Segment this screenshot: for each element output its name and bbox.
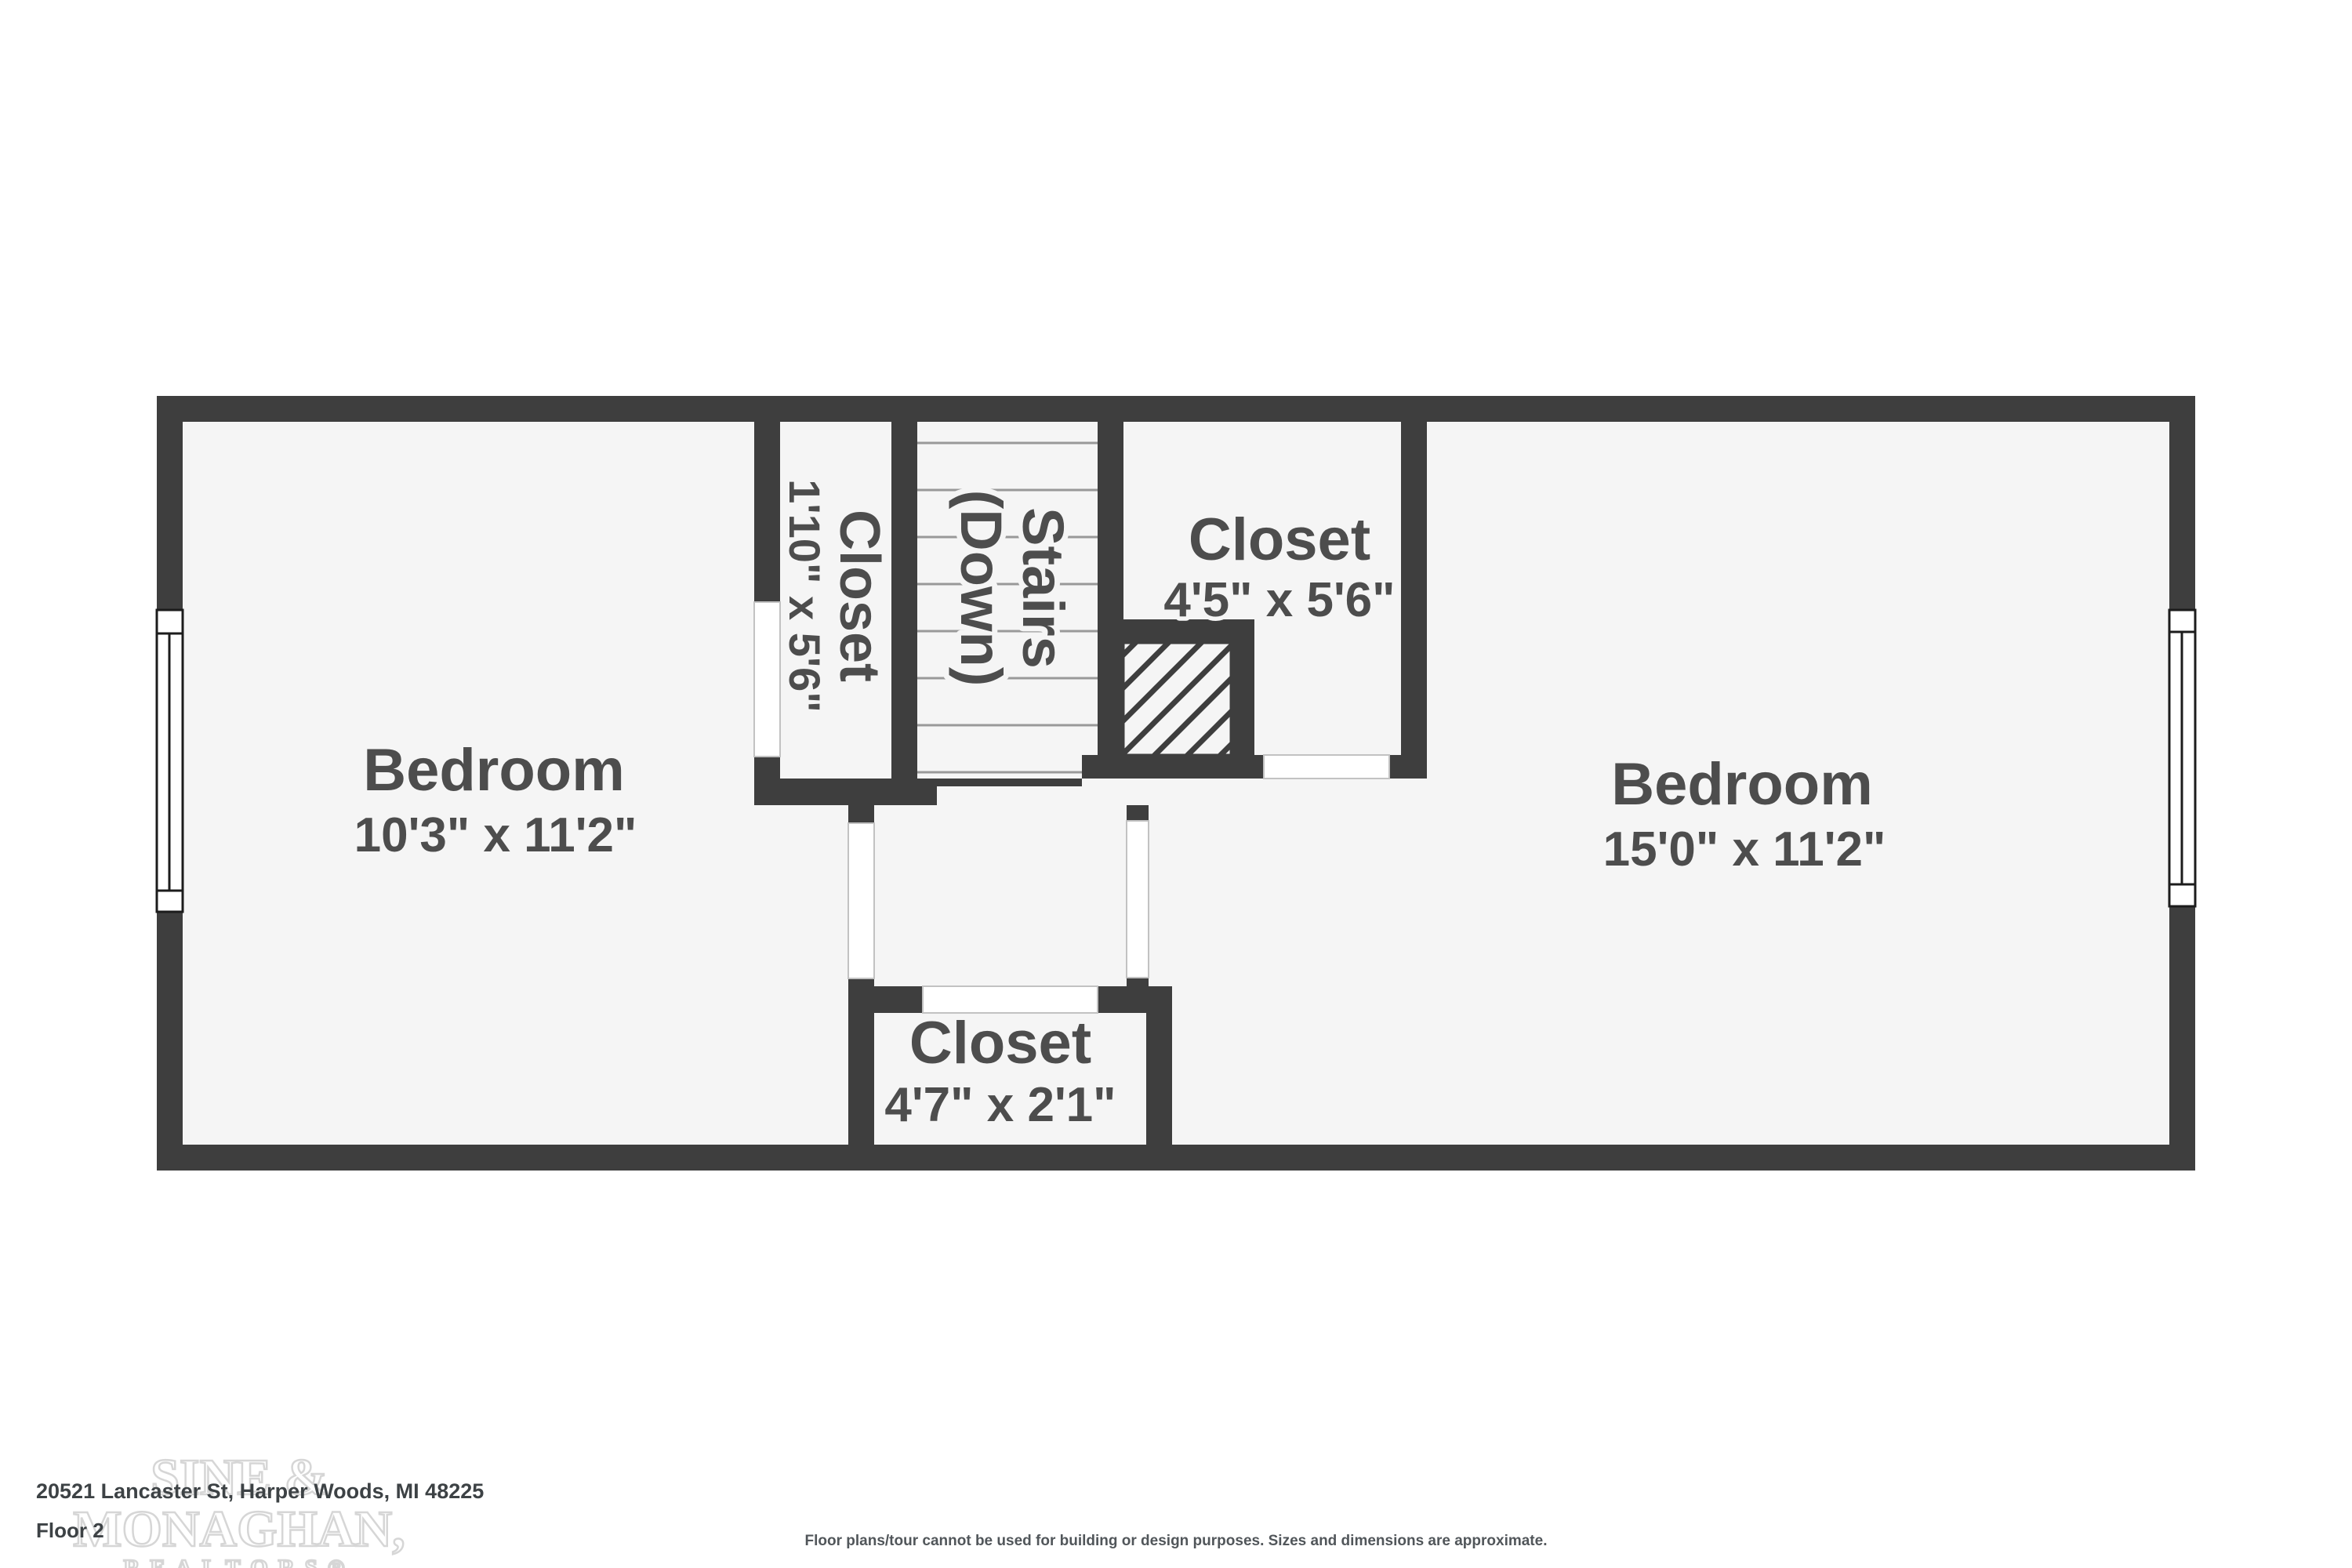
floor-plan: Bedroom 10'3" x 11'2" Bedroom 15'0" x 11… xyxy=(0,0,2352,1568)
wall-hall-north xyxy=(754,779,937,805)
door-opening-closet-bottom xyxy=(923,986,1098,1013)
bedroom-left-name: Bedroom xyxy=(363,737,625,804)
stairs-threshold xyxy=(937,779,1082,786)
door-opening-bedroom-left xyxy=(848,823,874,978)
wall-stairs-east xyxy=(1098,422,1123,779)
wall-closet-top-east xyxy=(1401,422,1427,755)
floor-plan-page: SINE & MONAGHAN, REALTORS® xyxy=(0,0,2352,1568)
closet-top-dims: 4'5" x 5'6" xyxy=(1163,573,1395,627)
closet-top-name: Closet xyxy=(1189,506,1370,573)
wall-hatch-east xyxy=(1231,619,1254,779)
closet-bottom-dims: 4'7" x 2'1" xyxy=(884,1078,1116,1132)
wall-top xyxy=(157,396,2195,422)
stairs-name: Stairs xyxy=(1011,507,1076,669)
closet-left-name: Closet xyxy=(828,510,891,682)
disclaimer-text: Floor plans/tour cannot be used for buil… xyxy=(0,1533,2352,1550)
window-icon-left xyxy=(157,610,183,912)
wall-bottom xyxy=(157,1145,2195,1171)
door-opening-bedroom-right xyxy=(1127,821,1149,978)
door-opening-closet-top xyxy=(1264,755,1389,779)
closet-bottom-name: Closet xyxy=(909,1010,1091,1076)
bedroom-right-name: Bedroom xyxy=(1611,751,1873,818)
closet-left-dims: 1'10" x 5'6" xyxy=(780,479,829,713)
bedroom-left-dims: 10'3" x 11'2" xyxy=(354,808,637,862)
stairs-direction: (Down) xyxy=(949,490,1014,687)
property-address: 20521 Lancaster St, Harper Woods, MI 482… xyxy=(36,1479,484,1504)
window-icon-right xyxy=(2169,610,2195,906)
wall-closet-bottom-east xyxy=(1146,986,1172,1171)
open-to-below-hatch-icon xyxy=(1123,643,1231,755)
bedroom-right-dims: 15'0" x 11'2" xyxy=(1603,822,1886,877)
wall-closet-left-east xyxy=(891,422,917,779)
door-opening-closet-left xyxy=(754,602,780,757)
